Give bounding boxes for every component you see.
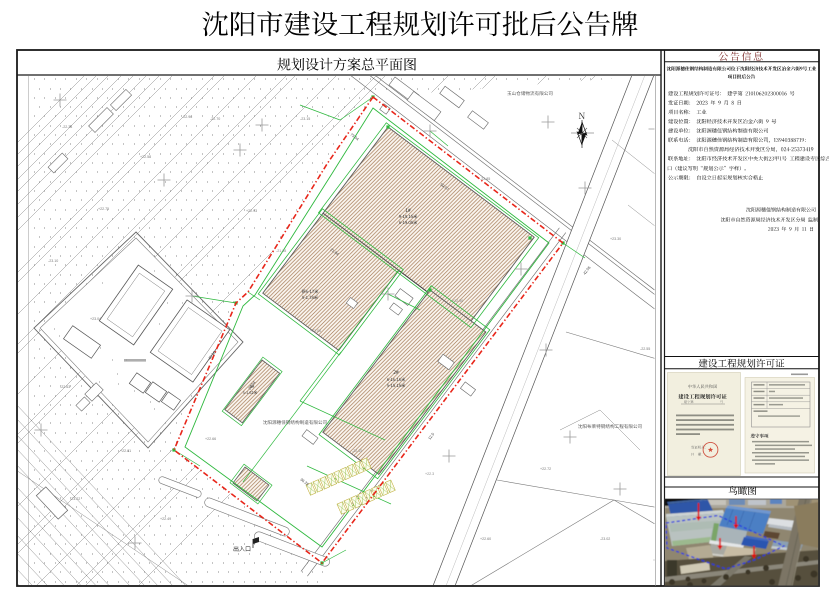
svg-text:-22.15: -22.15 — [352, 449, 362, 453]
svg-text:-22.63: -22.63 — [60, 385, 70, 389]
svg-text:+23.04: +23.04 — [90, 317, 101, 321]
svg-text:+22.3: +22.3 — [425, 472, 434, 476]
svg-text:+22.49: +22.49 — [160, 517, 171, 521]
svg-text:+22.93: +22.93 — [246, 209, 257, 213]
svg-text:+22.06: +22.06 — [310, 329, 321, 333]
svg-text:+22.60: +22.60 — [480, 537, 491, 541]
svg-text:-22.38: -22.38 — [62, 125, 72, 129]
svg-text:-23.22: -23.22 — [70, 497, 80, 501]
svg-text:-22.70: -22.70 — [210, 117, 220, 121]
svg-text:+22.81: +22.81 — [120, 449, 131, 453]
svg-text:+23.30: +23.30 — [610, 237, 621, 241]
svg-text:+22.72: +22.72 — [540, 467, 551, 471]
svg-text:-23.02: -23.02 — [600, 537, 610, 541]
svg-text:+22.75: +22.75 — [98, 207, 109, 211]
svg-text:-21.98: -21.98 — [276, 249, 286, 253]
svg-text:+22.36: +22.36 — [452, 299, 463, 303]
svg-text:-22.85: -22.85 — [480, 177, 490, 181]
svg-text:+22.66: +22.66 — [205, 437, 216, 441]
svg-text:-22.96: -22.96 — [182, 115, 192, 119]
svg-text:+22.58: +22.58 — [140, 155, 151, 159]
svg-text:-22.55: -22.55 — [640, 347, 650, 351]
svg-text:-23.10: -23.10 — [48, 259, 58, 263]
svg-text:-23.15: -23.15 — [300, 117, 310, 121]
